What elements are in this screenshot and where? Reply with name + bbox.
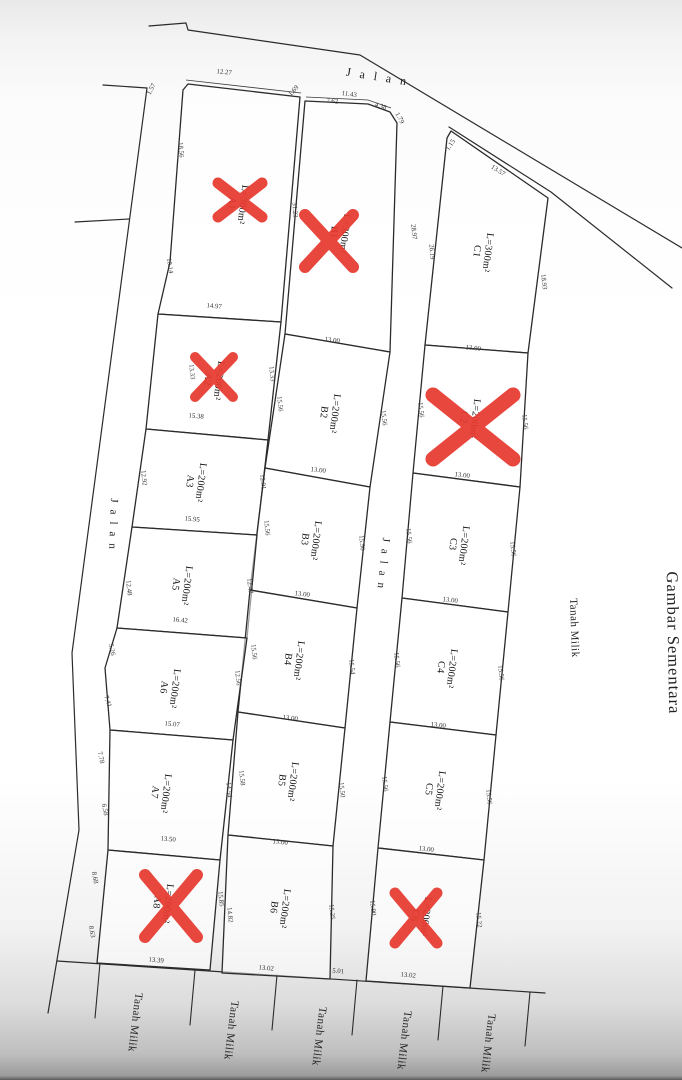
land-label-tanah-milik-south-5: Tanah Milik xyxy=(478,1013,497,1073)
dimension-label: 7.78 xyxy=(96,751,105,765)
road-label-jalan-middle: Jalan xyxy=(374,537,392,596)
dimension-label: 15.90 xyxy=(368,900,377,917)
land-label-tanah-milik-east: Tanah Milik xyxy=(567,598,581,658)
dimension-label: 13.02 xyxy=(400,971,416,979)
dimension-label: 5.26 xyxy=(107,643,116,657)
dimension-label: 7.62 xyxy=(326,97,339,105)
south-tick-4 xyxy=(352,980,357,1035)
boundary-stub-northwest xyxy=(103,85,147,88)
dimension-label: 18.56 xyxy=(176,142,184,158)
plot-parcels-layer: L=300m²A1L=300m²B1L=300m²C1L=200m²A2L=20… xyxy=(97,84,548,988)
dimension-label: 15.56 xyxy=(379,410,388,427)
dimension-label: 12.27 xyxy=(216,68,232,76)
dimension-label: 1.69 xyxy=(287,84,301,98)
dimension-label: 5.01 xyxy=(332,968,344,976)
dimension-label: 15.07 xyxy=(164,720,180,728)
dimension-label: 11.43 xyxy=(341,90,357,99)
plot-A8-boundary xyxy=(97,850,220,970)
land-label-tanah-milik-south-2: Tanah Milik xyxy=(221,1000,240,1060)
site-plan-canvas: L=300m²A1L=300m²B1L=300m²C1L=200m²A2L=20… xyxy=(0,0,682,1080)
site-plan-drawing: L=300m²A1L=300m²B1L=300m²C1L=200m²A2L=20… xyxy=(0,0,682,1080)
road-label-jalan-top: Jalan xyxy=(345,65,416,90)
land-label-tanah-milik-south-1: Tanah Milik xyxy=(125,992,144,1052)
dimension-label: 8.68 xyxy=(90,871,99,885)
dimension-label: 8.63 xyxy=(87,925,96,939)
dimension-label: 15.56 xyxy=(416,402,425,419)
boundary-stub-west xyxy=(75,219,129,222)
land-label-tanah-milik-south-4: Tanah Milik xyxy=(394,1010,413,1070)
dimension-label: 15.56 xyxy=(404,528,413,545)
dimension-label: 18.93 xyxy=(539,274,548,291)
dimension-label: 6.58 xyxy=(100,803,109,817)
dimension-label: 14.97 xyxy=(206,302,222,310)
south-tick-5 xyxy=(438,986,443,1040)
dimension-label: 13.39 xyxy=(148,956,164,964)
dimension-label: 28.97 xyxy=(409,224,418,241)
drawing-title-gambar-sementara: Gambar Sementara xyxy=(663,571,682,714)
dimension-label: 13.50 xyxy=(160,835,176,843)
dimension-label: 13.02 xyxy=(258,964,274,972)
road-label-jalan-west: Jalan xyxy=(106,498,120,556)
dimension-label: 15.95 xyxy=(184,515,200,523)
dimension-label: 10.14 xyxy=(165,258,174,275)
south-tick-1 xyxy=(95,963,100,1018)
dimension-label: 15.38 xyxy=(188,412,204,420)
south-tick-3 xyxy=(272,975,277,1030)
dimension-label: 31.23 xyxy=(290,202,298,218)
land-label-tanah-milik-south-3: Tanah Milik xyxy=(309,1006,328,1066)
dimension-label: 1.57 xyxy=(146,82,158,96)
south-tick-2 xyxy=(190,970,195,1025)
dimension-label: 15.85 xyxy=(216,891,225,908)
dimension-label: 15.56 xyxy=(380,776,389,793)
dimension-label: 15.56 xyxy=(392,652,401,669)
dimension-label: 26.19 xyxy=(427,244,435,260)
dimension-label: 16.42 xyxy=(172,616,188,624)
south-tick-6 xyxy=(525,992,530,1046)
